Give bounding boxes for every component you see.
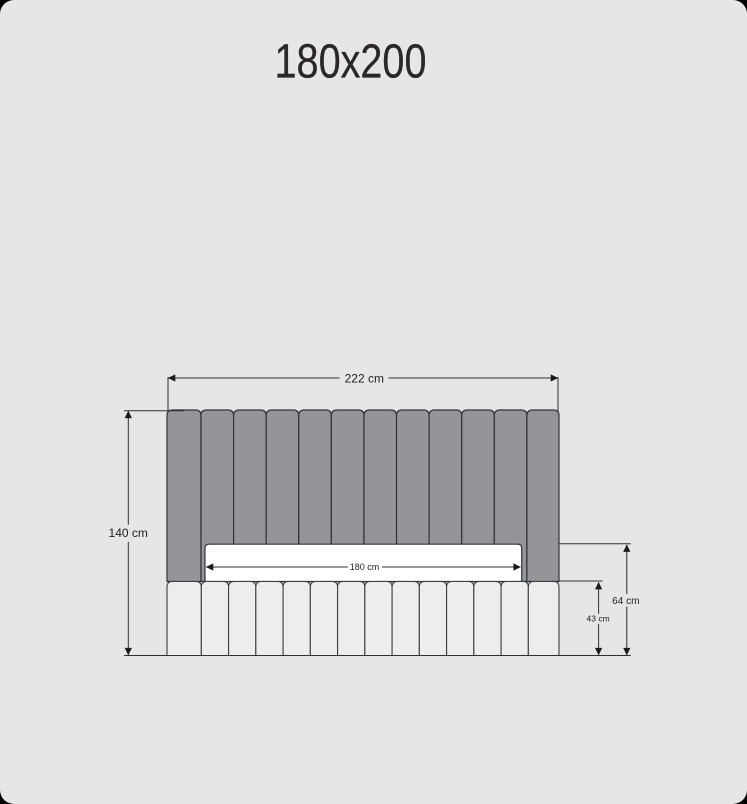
svg-text:180 cm: 180 cm <box>350 562 380 572</box>
svg-text:64 cm: 64 cm <box>612 596 639 607</box>
svg-text:180x200: 180x200 <box>275 35 427 89</box>
svg-text:140 cm: 140 cm <box>109 526 148 540</box>
svg-text:222 cm: 222 cm <box>345 371 384 385</box>
svg-text:43 cm: 43 cm <box>587 614 610 624</box>
